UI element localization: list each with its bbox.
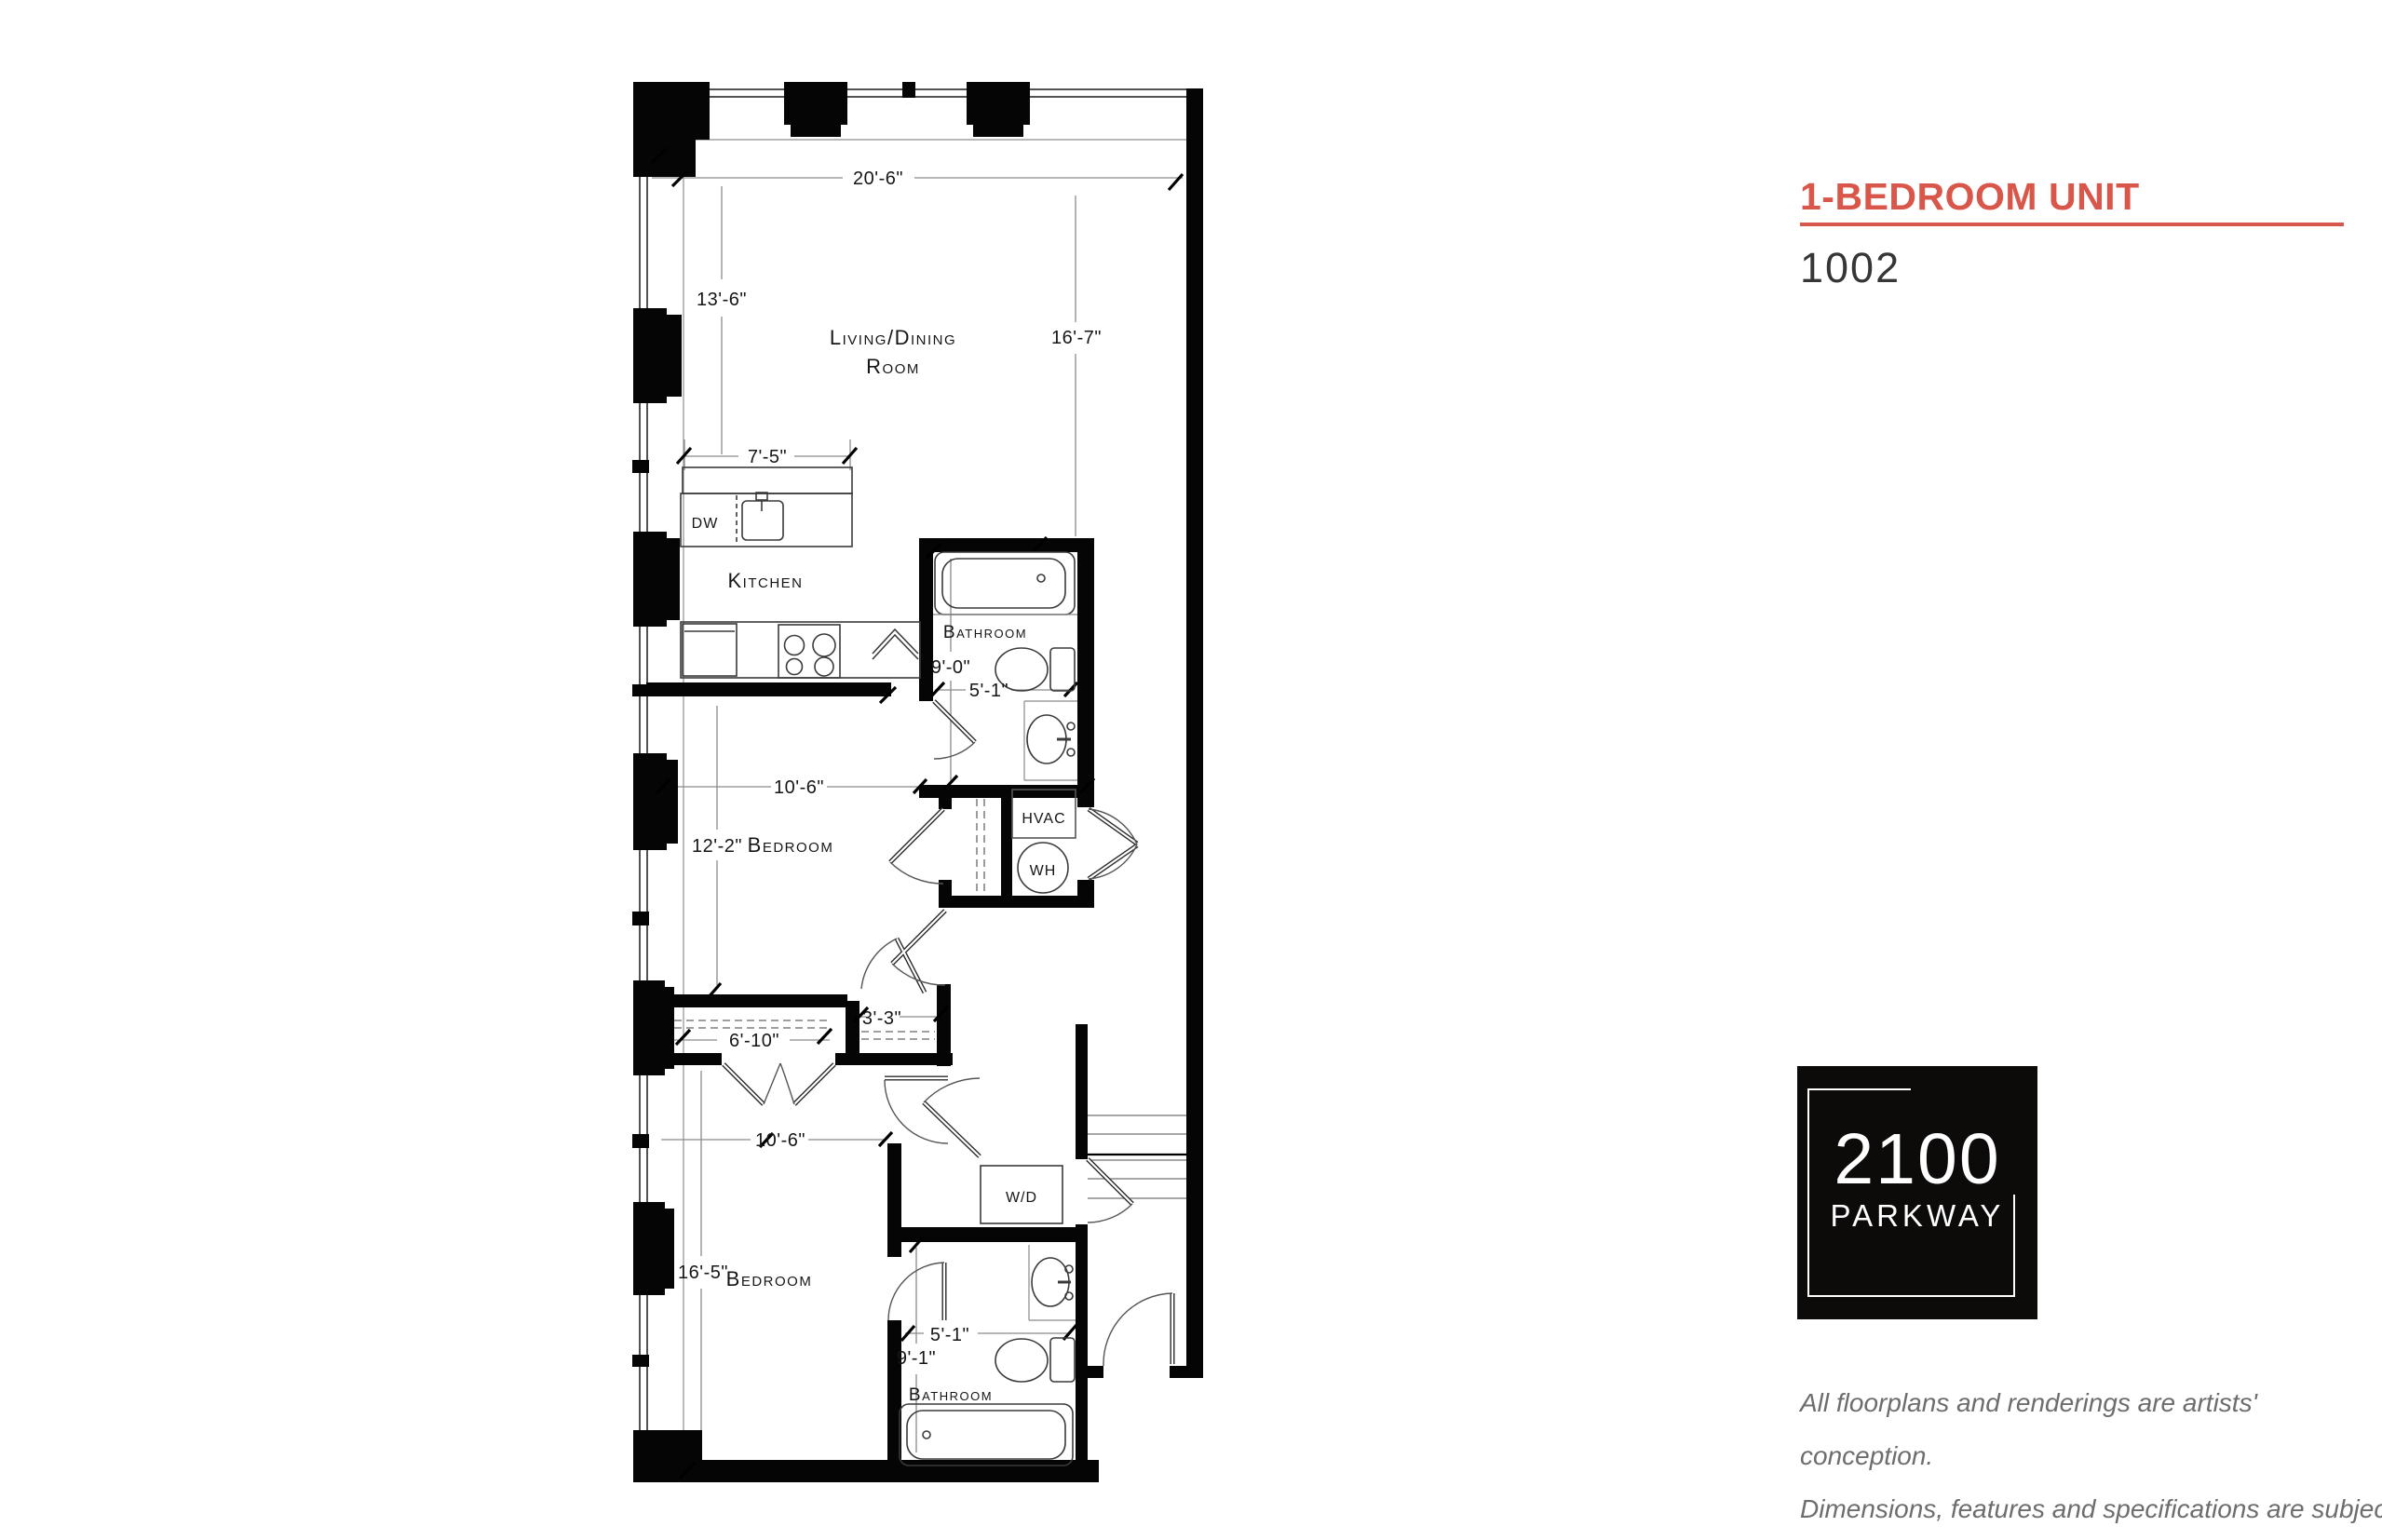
kitchen-counter-stove-run [681,622,920,678]
kitchen-sink [742,501,783,540]
fixtures [681,467,1077,1466]
disclaimer-line-1: All floorplans and renderings are artist… [1800,1376,2382,1482]
room-label-bedroom-lower: Bedroom [726,1267,813,1290]
fixture-label-dishwasher: DW [692,516,719,532]
dimension-label-living-height-left: 13'-6" [697,290,747,310]
disclaimer-text: All floorplans and renderings are artist… [1800,1376,2382,1540]
disclaimer-line-2: Dimensions, features and specifications … [1800,1482,2382,1535]
page-title: 1-BEDROOM UNIT [1800,175,2140,219]
dimension-label-living-height-right: 16'-7" [1051,328,1102,348]
fixture-label-water-heater: WH [1030,863,1057,879]
toilet-upper-tank [1050,648,1075,691]
dimension-label-living-width: 20'-6" [853,169,903,189]
brand-logo: 2100 PARKWAY [1797,1066,2037,1319]
disclaimer-line-3: to change at the discretion of the build… [1800,1535,2382,1540]
dimension-label-bedroom-lower-depth: 16'-5" [678,1263,728,1283]
dimension-label-closet-small: 3'-3" [862,1008,901,1029]
dimension-label-bathroom-upper-width: 5'-1" [969,681,1008,701]
dimension-label-kitchen-counter: 7'-5" [748,447,787,467]
room-label-bathroom-upper: Bathroom [943,623,1027,642]
title-underline [1800,223,2344,226]
dimension-label-bedroom-lower-width: 10'-6" [755,1130,805,1151]
kitchen-counter-top [683,467,852,493]
dimension-label-bathroom-lower-width: 5'-1" [930,1325,969,1345]
dimension-label-bathroom-upper-length: 9'-0" [931,657,970,678]
corner-pantry [873,629,918,659]
room-label-kitchen: Kitchen [727,569,803,592]
room-label-bedroom-upper: Bedroom [748,833,834,857]
room-label-bathroom-lower: Bathroom [909,1385,993,1405]
bathtub-lower [900,1404,1073,1466]
logo-text-parkway: PARKWAY [1797,1198,2037,1234]
fixture-label-hvac: HVAC [1022,811,1065,827]
dimension-label-closet-long: 6'-10" [729,1031,779,1051]
floorplan-page: 20'-6" 13'-6" Living/Dining Room 16'-7" … [0,0,2382,1540]
dimension-label-bathroom-lower-length: 9'-1" [897,1348,936,1369]
stairs [1088,1115,1186,1198]
toilet-lower-bowl [995,1339,1048,1382]
fixture-label-washer-dryer: W/D [1006,1190,1037,1206]
dimension-label-bedroom-upper-width: 10'-6" [774,777,824,798]
logo-text-2100: 2100 [1797,1122,2037,1196]
room-label-living-dining-2: Room [866,355,920,378]
bathtub-upper [935,552,1075,615]
dimension-label-bedroom-upper-depth: 12'-2" [692,836,742,857]
room-label-living-dining-1: Living/Dining [830,326,956,349]
toilet-lower-tank [1050,1338,1075,1382]
unit-number: 1002 [1800,244,1901,292]
